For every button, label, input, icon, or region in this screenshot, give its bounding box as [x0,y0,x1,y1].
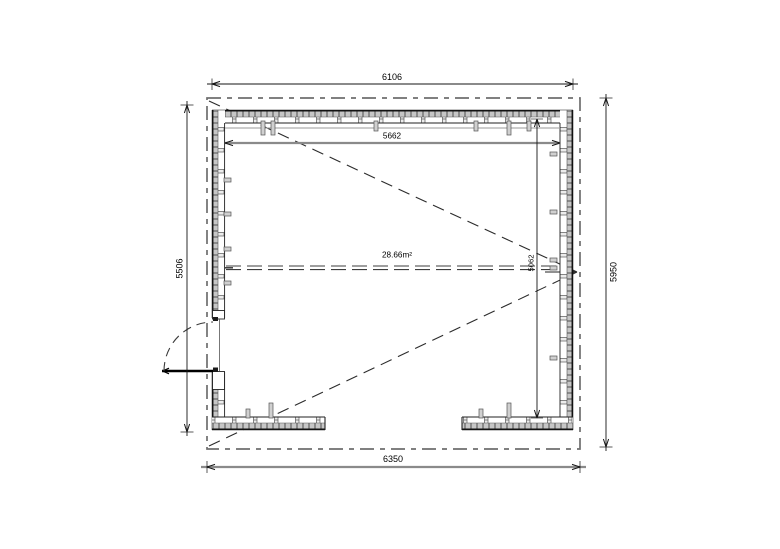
door-jamb-bottom [213,372,225,390]
dimension-interior-depth: 5062 [527,119,544,418]
room-area-label: 28.66m² [382,251,412,260]
floor-plan-drawing: 6106 5662 5062 5506 5950 6350 28.66m² [0,0,780,549]
dimension-left-label: 5506 [175,258,185,278]
dimension-top: 6106 [207,72,578,90]
door-swing-arc [164,322,213,371]
roof-slope-lines [209,101,577,446]
wall-top [212,110,573,123]
wall-right [560,110,573,430]
dimension-interior-depth-label: 5062 [527,255,536,272]
dimension-bottom: 6350 [201,454,586,473]
dimension-bottom-label: 6350 [383,454,403,464]
dimension-right: 5950 [600,94,619,451]
floor-plan-canvas: 6106 5662 5062 5506 5950 6350 28.66m² [0,0,780,549]
dimension-interior-width-label: 5662 [383,132,402,141]
ridge-line [214,266,576,277]
wall-bottom-left [212,417,325,430]
dimension-top-label: 6106 [382,72,402,82]
dimension-right-label: 5950 [609,262,619,282]
wall-bottom-right [462,417,573,430]
roof-overhang-outline [207,98,580,449]
dimension-left: 5506 [175,101,194,436]
door [162,311,225,390]
